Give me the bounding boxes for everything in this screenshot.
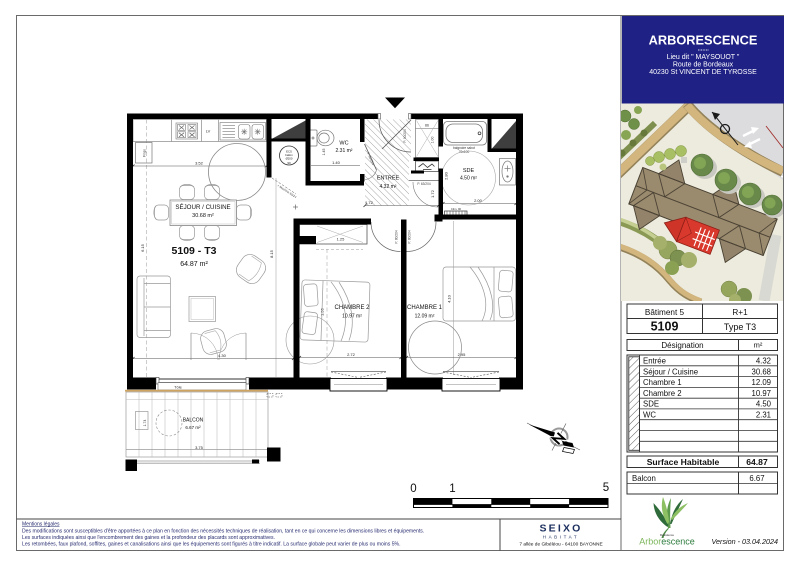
svg-text:Les surfaces indiquées ainsi q: Les surfaces indiquées ainsi que l'encom… [22,535,275,541]
svg-text:R+1: R+1 [732,308,748,317]
svg-text:P. 80/204: P. 80/204 [408,230,412,243]
svg-text:2.31 m²: 2.31 m² [336,148,353,154]
svg-text:1.72: 1.72 [365,200,374,205]
svg-text:Séjour / Cuisine: Séjour / Cuisine [643,367,698,376]
svg-text:64.87: 64.87 [746,457,768,467]
svg-text:64.87 m²: 64.87 m² [180,261,208,268]
svg-text:1: 1 [449,483,455,495]
svg-text:86: 86 [425,124,429,128]
svg-text:8.15: 8.15 [269,249,274,258]
svg-text:6.15: 6.15 [140,243,145,252]
svg-text:90: 90 [287,161,291,165]
svg-text:12.09: 12.09 [751,378,771,387]
svg-text:5109: 5109 [651,320,679,334]
svg-text:P. 63/204: P. 63/204 [417,182,430,186]
svg-text:40230 St VINCENT DE TYROSSE: 40230 St VINCENT DE TYROSSE [649,69,757,76]
svg-text:WC: WC [643,410,656,419]
svg-text:6.67: 6.67 [749,474,764,483]
svg-text:1.40: 1.40 [332,160,341,165]
svg-text:2.80: 2.80 [444,171,449,180]
svg-text:Type T3: Type T3 [724,322,756,332]
svg-text:SDE: SDE [643,400,659,409]
svg-text:6.67 m²: 6.67 m² [185,425,201,430]
svg-text:1.45: 1.45 [322,149,326,156]
svg-text:WC: WC [339,141,348,147]
svg-text:70x100: 70x100 [459,150,470,154]
svg-text:Tôle: Tôle [174,385,183,390]
svg-text:SÉJOUR / CUISINE: SÉJOUR / CUISINE [175,204,230,211]
svg-text:4.32 m²: 4.32 m² [380,184,397,190]
svg-text:4.32: 4.32 [756,357,771,366]
svg-text:2.31: 2.31 [756,410,771,419]
svg-text:Surface Habitable: Surface Habitable [647,457,720,467]
svg-text:Entrée: Entrée [643,357,666,366]
svg-text:Lieu dit " MAYSOUOT ": Lieu dit " MAYSOUOT " [667,54,740,61]
svg-text:HABITAT: HABITAT [543,535,580,540]
svg-text:Désignation: Désignation [661,341,703,350]
svg-text:1.25: 1.25 [337,237,346,242]
svg-text:0: 0 [410,483,416,495]
svg-text:BALCON: BALCON [183,418,204,424]
svg-text:SEIXO: SEIXO [539,523,582,535]
svg-text:P. 90/204: P. 90/204 [403,129,407,142]
svg-text:2.00: 2.00 [474,198,483,203]
svg-text:Chambre 2: Chambre 2 [643,389,682,398]
svg-text:7 allée de Gibéléou - 64100: 7 allée de Gibéléou - 64100 BAYONNE [519,542,602,548]
svg-text:4.50: 4.50 [756,400,772,409]
svg-text:Bâtiment 5: Bâtiment 5 [645,308,685,317]
svg-text:3.52: 3.52 [195,161,204,166]
svg-text:1.74: 1.74 [143,420,147,427]
svg-text:1.72: 1.72 [430,189,435,198]
svg-text:2.72: 2.72 [347,352,356,357]
svg-text:Mentions légales: Mentions légales [22,522,60,528]
svg-text:2.95: 2.95 [458,352,467,357]
svg-text:4.50 m²: 4.50 m² [460,176,477,182]
svg-text:CHAMBRE 2: CHAMBRE 2 [334,305,370,311]
svg-text:5109 - T3: 5109 - T3 [172,245,217,257]
svg-text:LV: LV [206,129,211,134]
svg-text:4.10: 4.10 [447,294,452,303]
svg-text:Arborescence: Arborescence [639,537,695,547]
svg-text:Clim. 90: Clim. 90 [451,207,462,211]
svg-text:Les retombées, faux plafond, s: Les retombées, faux plafond, soffites, g… [22,542,400,548]
svg-text:Route de Bordeaux: Route de Bordeaux [673,62,734,69]
svg-text:30.68 m²: 30.68 m² [192,213,214,219]
svg-text:5: 5 [603,482,609,494]
svg-text:SDE: SDE [463,168,475,174]
svg-text:10.97 m²: 10.97 m² [342,314,362,320]
svg-text:CHAMBRE 1: CHAMBRE 1 [407,305,443,311]
svg-text:ARBORESCENCE: ARBORESCENCE [649,33,758,48]
svg-text:ENTRÉE: ENTRÉE [377,175,400,182]
svg-text:Des modifications sont suscept: Des modifications sont susceptibles d'êt… [22,529,424,535]
svg-text:m²: m² [754,341,763,350]
svg-text:Ø200: Ø200 [286,157,293,161]
svg-text:Version - 03.04.2024: Version - 03.04.2024 [712,537,778,546]
svg-text:1.00: 1.00 [431,137,435,144]
svg-text:Frigo: Frigo [143,149,147,157]
svg-text:P. 80/204: P. 80/204 [395,230,399,243]
svg-text:12.09 m²: 12.09 m² [415,314,435,320]
svg-text:Balcon: Balcon [632,474,656,483]
svg-text:10.97: 10.97 [751,389,771,398]
svg-text:30.68: 30.68 [751,367,771,376]
svg-text:Chambre 1: Chambre 1 [643,378,682,387]
